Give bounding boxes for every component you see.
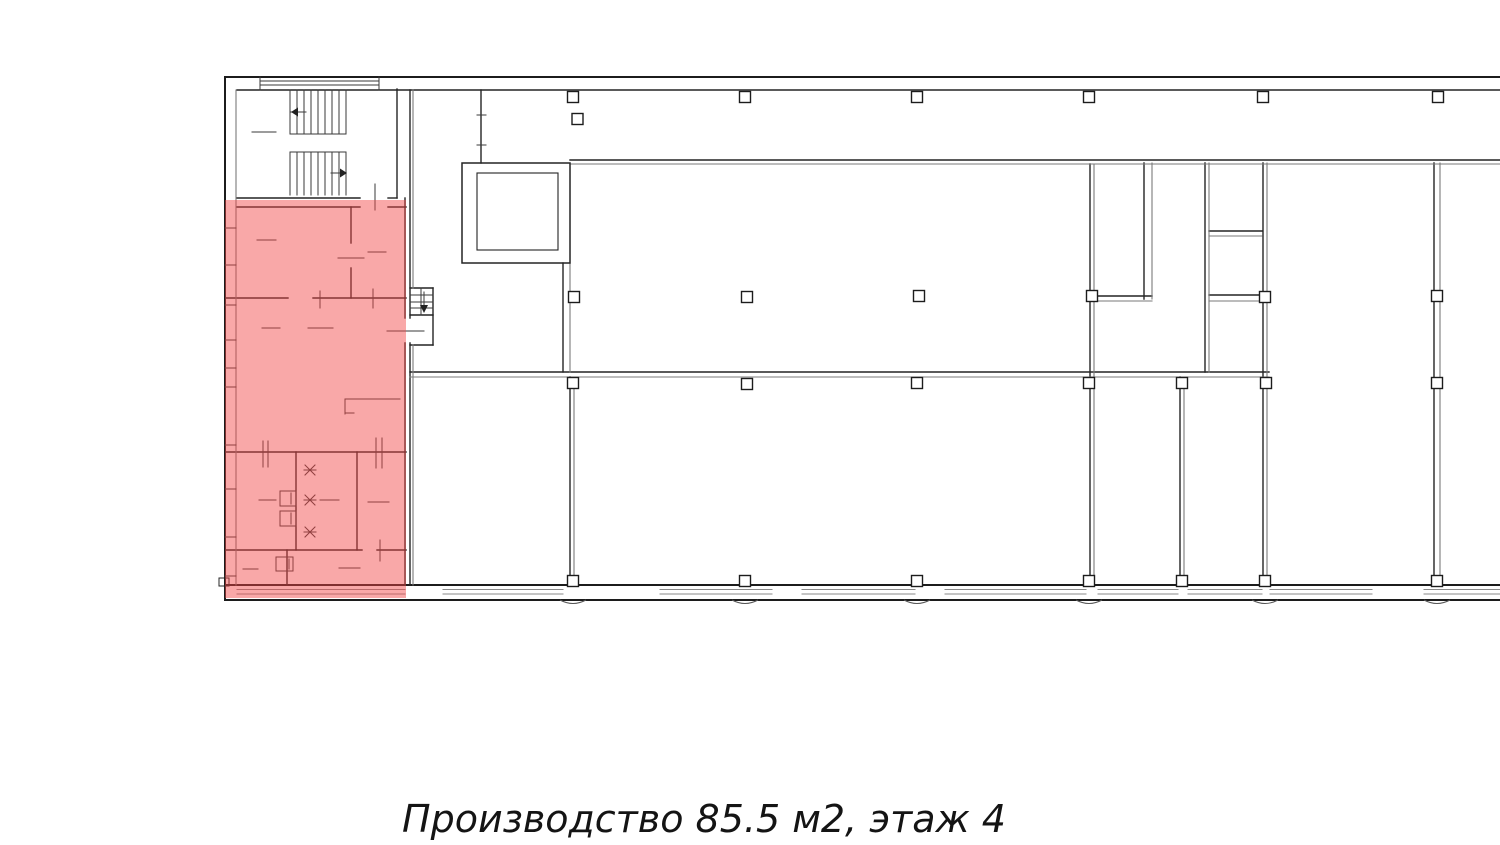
outer-walls — [225, 77, 1500, 600]
elevator-shaft-outer — [462, 163, 570, 263]
structural-columns — [568, 92, 1444, 587]
elevator-shaft-inner — [477, 173, 558, 250]
interior-walls-light — [236, 90, 1500, 585]
floor-plan-page: Производство 85.5 м2, этаж 4 — [0, 0, 1500, 845]
plan-caption: Производство 85.5 м2, этаж 4 — [402, 797, 1006, 841]
highlight-region — [225, 200, 406, 598]
window-band-lines — [237, 590, 1500, 595]
stair-up-arrowhead — [291, 108, 298, 117]
floor-plan-svg — [0, 0, 1500, 845]
interior-walls — [226, 89, 1500, 585]
